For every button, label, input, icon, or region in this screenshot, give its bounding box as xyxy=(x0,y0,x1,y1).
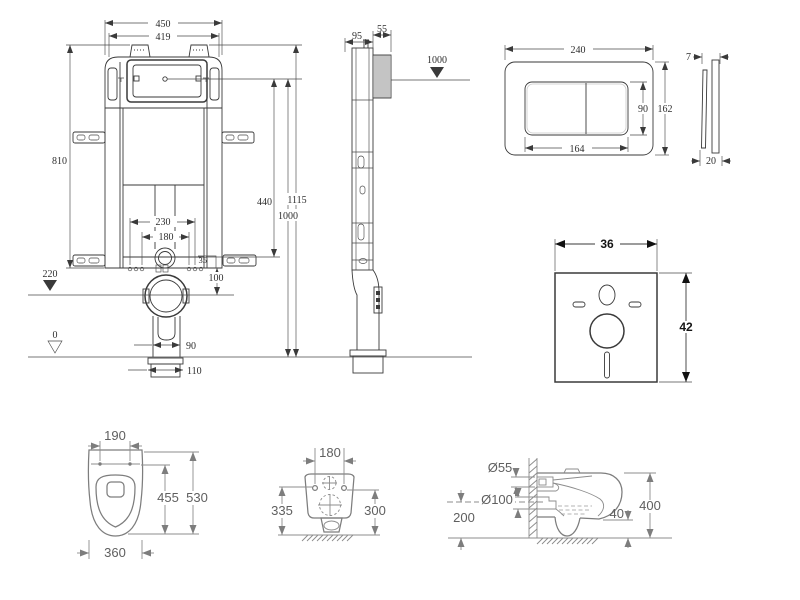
access-window xyxy=(127,60,207,102)
dim-bolt-span-inner: 180 xyxy=(159,232,174,243)
fixing-hole-left xyxy=(313,486,318,491)
wall-hatch xyxy=(529,458,537,538)
cistern-side-dimensions: 95 55 1000 xyxy=(345,24,470,80)
plate-frame-profile xyxy=(712,60,719,153)
technical-drawing: 450 419 810 440 1115 1000 230 xyxy=(0,0,800,600)
mat-dimensions: 36 42 xyxy=(555,237,698,382)
flush-buttons xyxy=(525,82,628,135)
dim-mat-width: 36 xyxy=(600,237,614,251)
view-flush-plate-side: 7 20 xyxy=(686,52,731,167)
flush-plate-dimensions: 240 164 90 162 xyxy=(505,43,677,155)
dim-flush-drop: 440 xyxy=(257,197,272,208)
mat-outline xyxy=(555,273,657,382)
dim-plate-width: 240 xyxy=(571,45,586,56)
frame-top-tabs xyxy=(130,45,209,57)
dim-total-height: 1115 xyxy=(287,195,306,206)
dim-outlet-diameter: Ø100 xyxy=(481,492,513,507)
level-marker-filled xyxy=(43,280,57,291)
toilet-side-outline xyxy=(537,469,622,536)
plate-side-dimensions: 7 20 xyxy=(686,52,731,167)
inlet-hole-hidden xyxy=(322,476,337,490)
dim-inlet-diameter: Ø55 xyxy=(488,460,513,475)
dim-inner-width: 419 xyxy=(156,32,171,43)
plate-blade-profile xyxy=(702,70,708,148)
dim-plate-thickness: 7 xyxy=(686,52,691,63)
view-cistern-frame-side: 95 55 1000 xyxy=(345,24,470,373)
fixing-hole-right xyxy=(342,486,347,491)
toilet-side-inner xyxy=(537,476,604,516)
dim-total-height: 400 xyxy=(639,498,661,513)
dim-offset: 35 xyxy=(199,255,208,265)
mat-center-hole xyxy=(590,314,624,348)
dim-seat-depth: 455 xyxy=(157,490,179,505)
view-toilet-rear: 180 335 300 xyxy=(267,445,390,541)
dim-plate-height: 162 xyxy=(658,104,673,115)
dim-bottom-gap: 40 xyxy=(610,506,624,521)
dim-hose-depth: 55 xyxy=(377,24,387,35)
frame-side-column xyxy=(352,40,373,270)
dim-outlet-offset: 100 xyxy=(209,273,224,284)
frame-side-pads xyxy=(108,68,219,100)
dim-total-depth: 530 xyxy=(186,490,208,505)
dim-inlet-height: 300 xyxy=(364,503,386,518)
mat-left-slot xyxy=(573,302,585,307)
level-marker-open xyxy=(48,341,62,353)
dim-button-height: 1000 xyxy=(278,211,298,222)
dim-outer-width: 450 xyxy=(156,19,171,30)
dim-bolt-span-outer: 230 xyxy=(156,217,171,228)
dim-pipe-width: 90 xyxy=(186,341,196,352)
floor-flange xyxy=(148,358,183,377)
bolt-holes-row xyxy=(128,265,203,272)
dim-mat-height: 42 xyxy=(679,320,693,334)
dim-plate-depth: 20 xyxy=(706,156,716,167)
cistern-front-dimensions: 450 419 810 440 1115 1000 230 xyxy=(28,17,472,377)
toilet-bowl-inner xyxy=(96,475,135,527)
outlet-elbow-side xyxy=(350,270,386,373)
dim-button-height: 90 xyxy=(638,104,648,115)
dim-outlet-height: 200 xyxy=(453,510,475,525)
dim-flange-width: 110 xyxy=(187,366,202,377)
wall-anchor-brackets xyxy=(73,132,256,266)
mat-top-hole xyxy=(599,285,615,305)
view-toilet-top: 190 455 530 360 xyxy=(77,428,212,560)
view-sound-insulation-mat: 36 42 xyxy=(555,237,698,382)
level-marker-filled xyxy=(430,67,444,78)
water-hose-corrugation xyxy=(373,55,391,98)
level-1000-label: 1000 xyxy=(427,55,447,66)
level-outlet-label: 220 xyxy=(43,269,58,280)
dim-button-width: 164 xyxy=(570,144,585,155)
mat-bottom-slot xyxy=(605,352,610,378)
dim-hole-height: 335 xyxy=(271,503,293,518)
view-cistern-frame-front: 450 419 810 440 1115 1000 230 xyxy=(28,17,472,377)
dim-seat-hole-spacing: 190 xyxy=(104,428,126,443)
flush-water-inlet xyxy=(107,482,124,497)
outlet-hole-hidden xyxy=(318,494,342,516)
mat-right-slot xyxy=(629,302,641,307)
dim-frame-height: 810 xyxy=(52,156,67,167)
toilet-top-dimensions: 190 455 530 360 xyxy=(77,428,212,560)
view-toilet-side-section: Ø55 Ø100 200 40 400 xyxy=(447,458,672,550)
technical-drawing-page: 450 419 810 440 1115 1000 230 xyxy=(0,0,800,600)
dim-frame-depth: 95 xyxy=(352,31,362,42)
view-flush-plate-front: 240 164 90 162 xyxy=(505,43,677,155)
level-floor-label: 0 xyxy=(53,330,58,341)
dim-fixing-hole-spacing: 180 xyxy=(319,445,341,460)
dim-toilet-width: 360 xyxy=(104,545,126,560)
